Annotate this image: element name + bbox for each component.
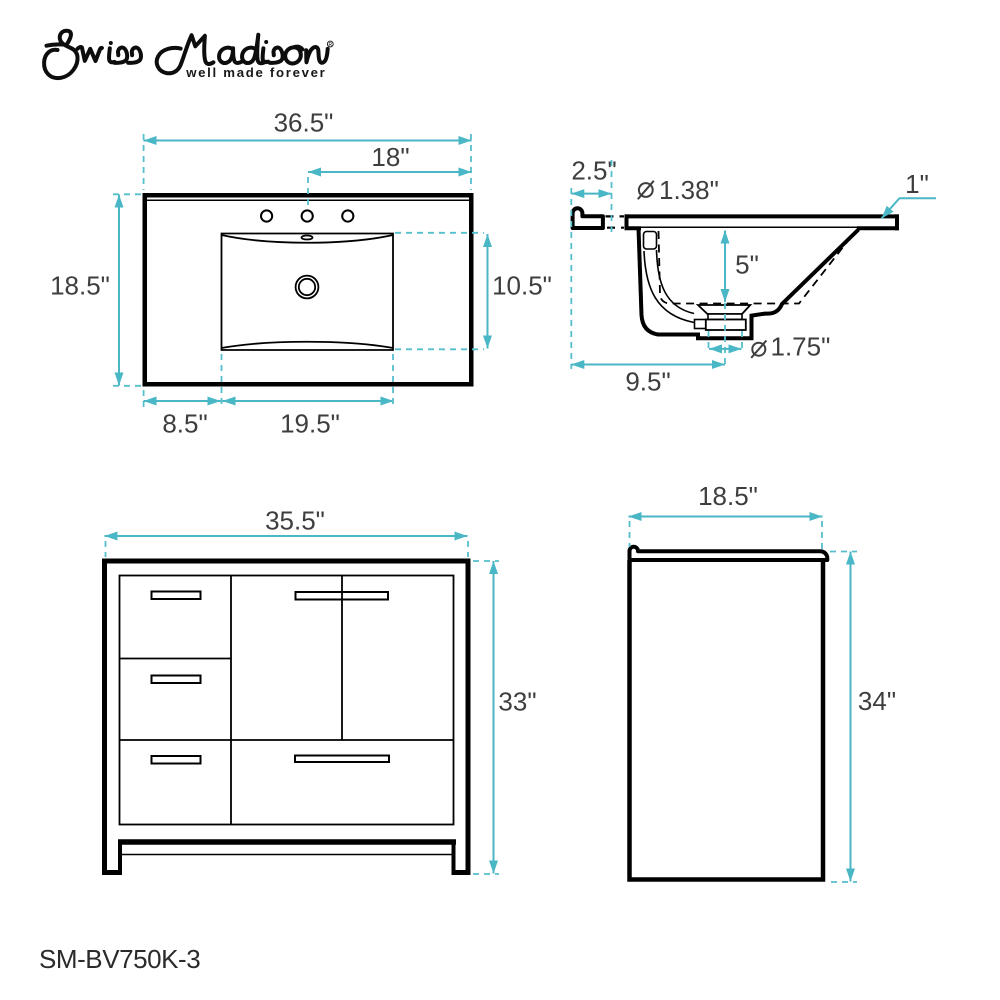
svg-text:1.38": 1.38" [659, 175, 719, 205]
svg-text:SM-BV750K-3: SM-BV750K-3 [39, 944, 200, 974]
svg-text:2.5": 2.5" [571, 156, 616, 186]
svg-text:1": 1" [905, 169, 929, 199]
svg-text:10.5": 10.5" [492, 271, 552, 301]
svg-text:18.5": 18.5" [50, 271, 110, 301]
svg-text:5": 5" [735, 250, 759, 280]
svg-text:33": 33" [498, 687, 536, 717]
svg-text:19.5": 19.5" [280, 409, 340, 439]
svg-text:well made forever: well made forever [185, 65, 326, 80]
svg-text:R: R [328, 42, 332, 48]
svg-text:36.5": 36.5" [274, 108, 334, 138]
svg-text:18.5": 18.5" [698, 481, 758, 511]
svg-text:35.5": 35.5" [265, 506, 325, 536]
svg-text:9.5": 9.5" [625, 367, 670, 397]
svg-text:8.5": 8.5" [162, 409, 207, 439]
svg-text:1.75": 1.75" [771, 332, 831, 362]
svg-text:34": 34" [858, 686, 896, 716]
svg-text:18": 18" [371, 142, 409, 172]
